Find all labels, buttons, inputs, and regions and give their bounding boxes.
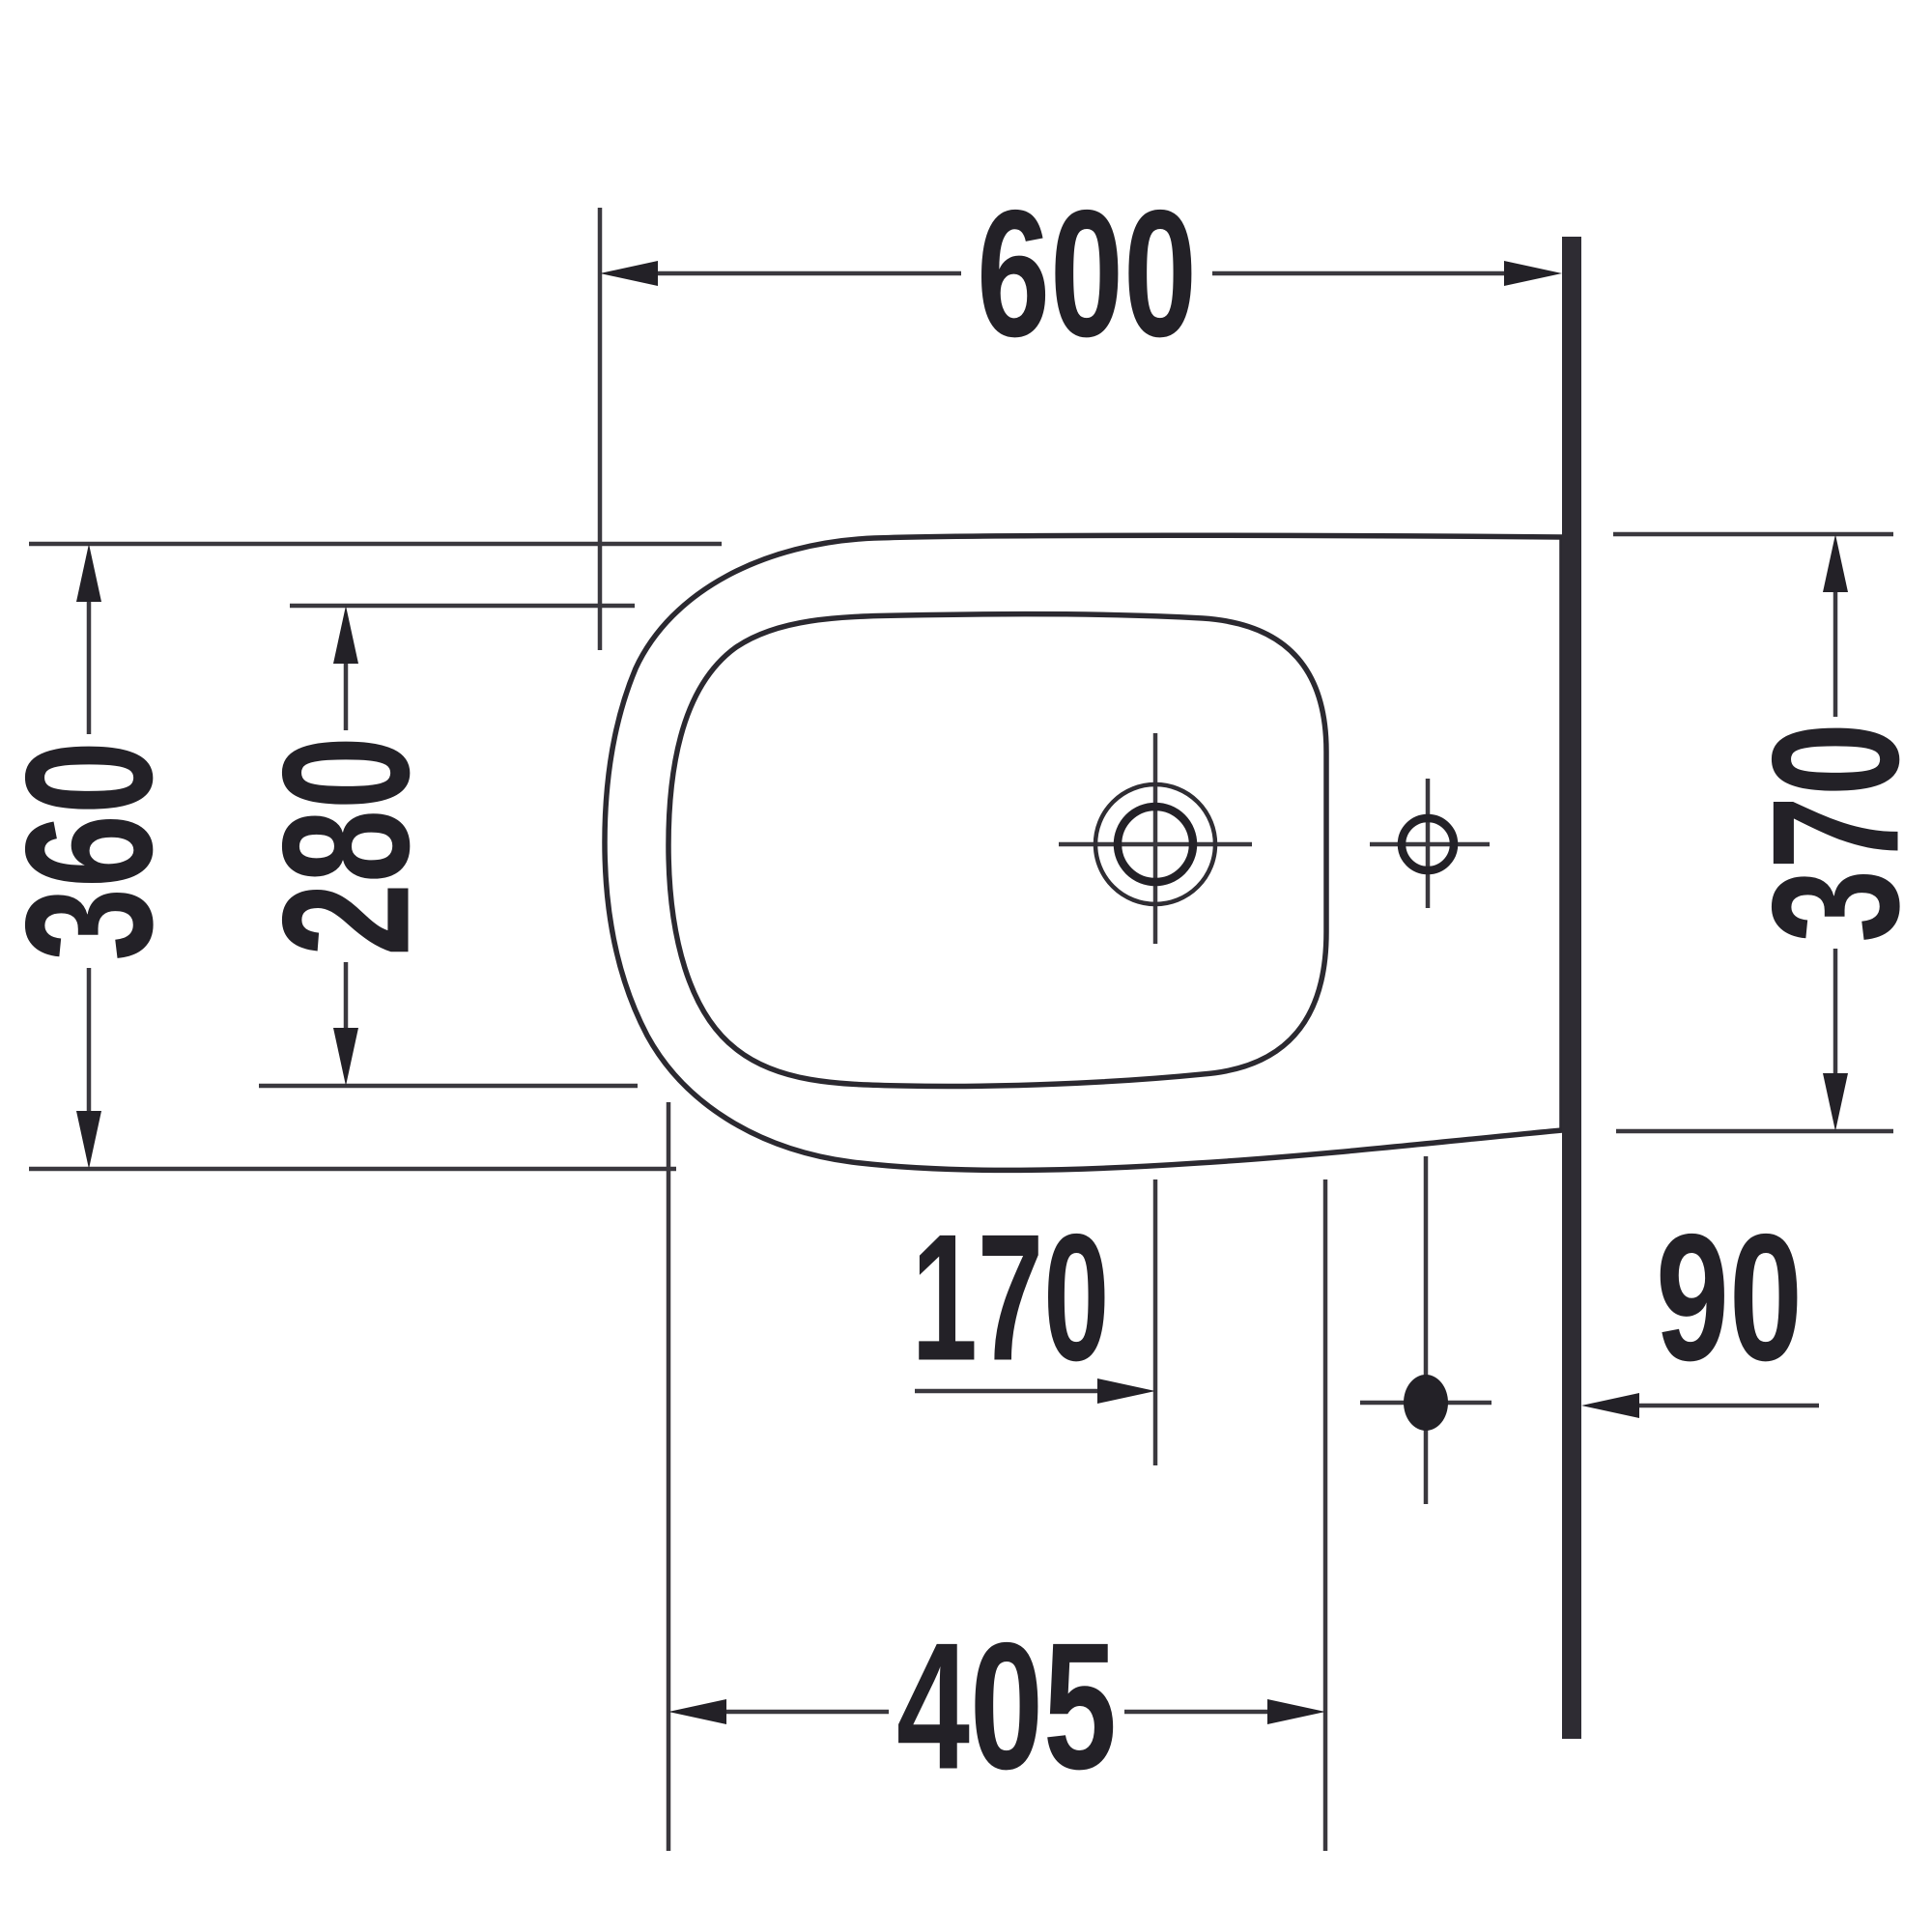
dim-600-arrow-right (1504, 261, 1562, 286)
dim-360-label: 360 (0, 741, 190, 961)
dim-405-arrow-left (668, 1699, 726, 1724)
wall-line (1562, 237, 1581, 1739)
dim-280-arrow-down (333, 1028, 358, 1086)
dim-370-arrow-up (1823, 534, 1848, 592)
dim-90-label: 90 (1656, 1197, 1803, 1399)
dim-405-arrow-right (1267, 1699, 1325, 1724)
dim-405-label: 405 (896, 1605, 1117, 1807)
dim-90-arrow-left (1581, 1393, 1639, 1418)
dim-170-label: 170 (912, 1197, 1110, 1399)
drain-point-dot (1404, 1375, 1448, 1431)
dim-600-arrow-left (600, 261, 658, 286)
technical-drawing-canvas: 600 360 280 370 170 90 405 (0, 0, 1932, 1932)
bidet-outer-outline (605, 535, 1562, 1170)
dim-370-arrow-down (1823, 1073, 1848, 1131)
dim-360-arrow-down (76, 1111, 101, 1169)
dim-280-label: 280 (245, 736, 447, 956)
dim-600-label: 600 (977, 173, 1197, 375)
dim-280-arrow-up (333, 606, 358, 664)
dim-370-label: 370 (1735, 723, 1932, 943)
dim-360-arrow-up (76, 544, 101, 602)
bidet-dimension-drawing: 600 360 280 370 170 90 405 (0, 0, 1932, 1932)
